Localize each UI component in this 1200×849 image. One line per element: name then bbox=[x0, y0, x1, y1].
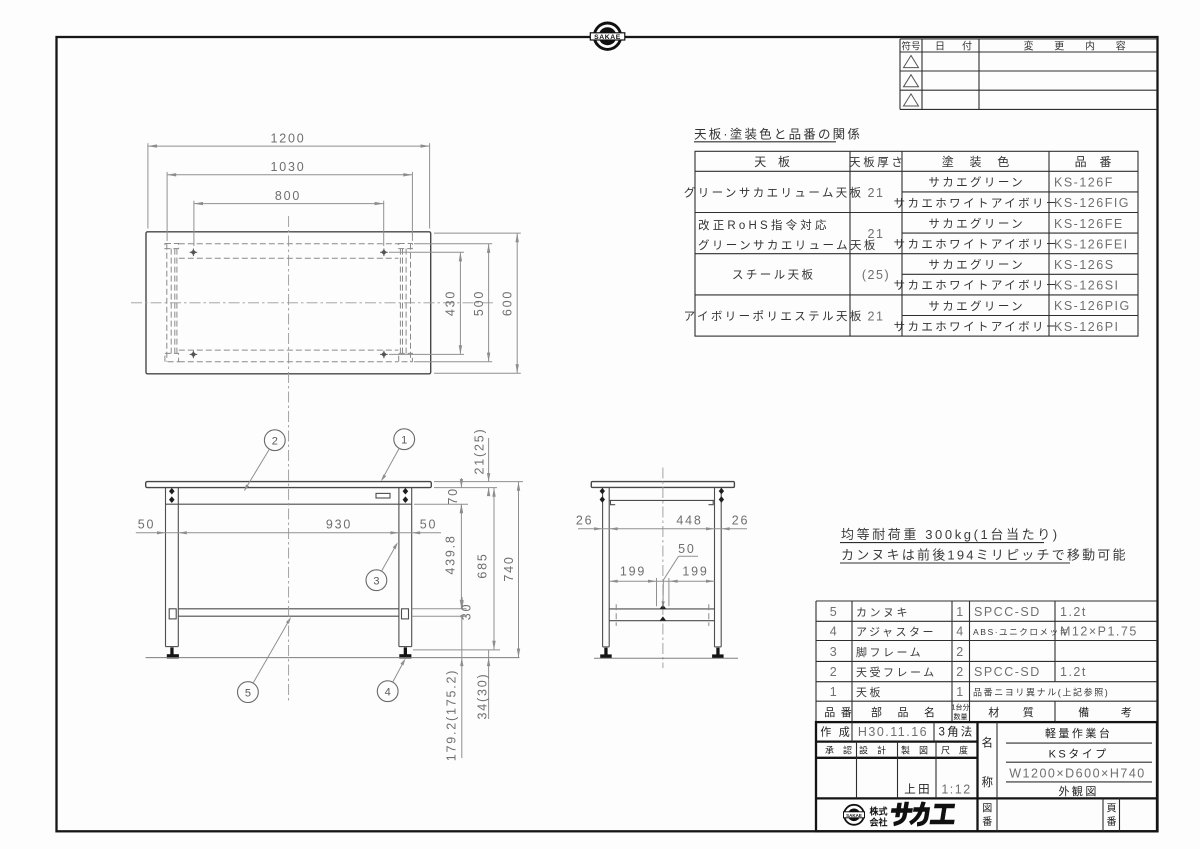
svg-text:4: 4 bbox=[385, 686, 391, 698]
svg-text:21: 21 bbox=[868, 309, 885, 323]
svg-text:改正RoHS指令対応: 改正RoHS指令対応 bbox=[698, 218, 830, 232]
svg-text:179.2(175.2): 179.2(175.2) bbox=[445, 669, 459, 762]
svg-text:600: 600 bbox=[501, 290, 515, 316]
svg-text:4: 4 bbox=[830, 625, 838, 639]
svg-text:変更内容: 変更内容 bbox=[1024, 40, 1147, 53]
svg-text:2: 2 bbox=[272, 435, 278, 447]
svg-text:1200: 1200 bbox=[270, 131, 305, 145]
svg-text:199: 199 bbox=[682, 564, 708, 578]
svg-text:199: 199 bbox=[620, 564, 646, 578]
svg-text:SPCC-SD: SPCC-SD bbox=[974, 665, 1041, 679]
svg-text:70: 70 bbox=[446, 487, 460, 505]
svg-text:KS-126PIG: KS-126PIG bbox=[1054, 299, 1131, 313]
svg-text:439.8: 439.8 bbox=[444, 534, 458, 574]
svg-text:番: 番 bbox=[1107, 816, 1117, 828]
svg-text:740: 740 bbox=[502, 555, 516, 581]
svg-text:数量: 数量 bbox=[954, 712, 968, 721]
svg-text:21: 21 bbox=[868, 227, 885, 241]
svg-text:品番: 品番 bbox=[1075, 155, 1125, 169]
svg-text:SAKAE: SAKAE bbox=[846, 813, 862, 818]
svg-text:685: 685 bbox=[475, 552, 489, 578]
svg-text:5: 5 bbox=[245, 687, 251, 699]
svg-text:21(25): 21(25) bbox=[473, 428, 487, 475]
svg-text:作成: 作成 bbox=[820, 726, 857, 739]
svg-text:番: 番 bbox=[982, 816, 992, 828]
svg-text:2: 2 bbox=[830, 665, 838, 679]
svg-text:KS-126F: KS-126F bbox=[1054, 176, 1114, 190]
svg-text:株式: 株式 bbox=[870, 806, 888, 817]
svg-text:サカエホワイトアイボリー: サカエホワイトアイボリー bbox=[894, 197, 1060, 210]
svg-text:1:12: 1:12 bbox=[941, 783, 971, 797]
svg-text:アイボリーポリエステル天板: アイボリーポリエステル天板 bbox=[684, 309, 864, 323]
svg-text:尺度: 尺度 bbox=[941, 745, 977, 756]
svg-text:部品名: 部品名 bbox=[871, 705, 951, 719]
svg-text:26: 26 bbox=[576, 513, 594, 527]
svg-text:KS-126FE: KS-126FE bbox=[1054, 217, 1124, 231]
svg-text:SAKAE: SAKAE bbox=[594, 34, 621, 41]
svg-text:グリーンサカエリューム天板: グリーンサカエリューム天板 bbox=[684, 186, 864, 200]
svg-text:天板: 天板 bbox=[856, 685, 883, 699]
svg-text:名: 名 bbox=[981, 736, 993, 750]
svg-text:1台分: 1台分 bbox=[952, 703, 970, 712]
svg-text:430: 430 bbox=[444, 290, 458, 316]
svg-text:4: 4 bbox=[956, 625, 964, 639]
svg-text:930: 930 bbox=[326, 517, 352, 531]
svg-text:2: 2 bbox=[956, 665, 964, 679]
svg-text:サカエグリーン: サカエグリーン bbox=[928, 216, 1025, 230]
svg-text:3角法: 3角法 bbox=[939, 725, 975, 739]
svg-text:天板: 天板 bbox=[754, 155, 802, 169]
svg-text:会社: 会社 bbox=[870, 817, 888, 828]
svg-text:1030: 1030 bbox=[270, 160, 305, 174]
svg-text:アジャスター: アジャスター bbox=[856, 626, 936, 639]
svg-text:軽量作業台: 軽量作業台 bbox=[1045, 726, 1113, 740]
svg-text:ABS·ユニクロメッキ: ABS·ユニクロメッキ bbox=[973, 627, 1070, 637]
svg-text:カンヌキは前後194ミリピッチで移動可能: カンヌキは前後194ミリピッチで移動可能 bbox=[841, 548, 1128, 563]
svg-text:製図: 製図 bbox=[901, 745, 937, 756]
svg-text:カンヌキ: カンヌキ bbox=[856, 606, 910, 619]
svg-text:天受フレーム: 天受フレーム bbox=[856, 666, 937, 679]
svg-text:2: 2 bbox=[956, 645, 964, 659]
svg-text:3: 3 bbox=[830, 645, 838, 659]
svg-text:称: 称 bbox=[981, 775, 993, 789]
svg-text:H30.11.16: H30.11.16 bbox=[858, 725, 928, 739]
svg-text:1.2t: 1.2t bbox=[1060, 665, 1087, 679]
svg-text:50: 50 bbox=[678, 542, 696, 556]
svg-text:サカエホワイトアイボリー: サカエホワイトアイボリー bbox=[894, 320, 1060, 333]
svg-text:サカエグリーン: サカエグリーン bbox=[928, 258, 1025, 272]
svg-text:5: 5 bbox=[830, 605, 838, 619]
svg-text:(25): (25) bbox=[862, 268, 890, 282]
svg-text:符号: 符号 bbox=[901, 40, 920, 52]
svg-text:50: 50 bbox=[138, 517, 156, 531]
svg-text:天板·塗装色と品番の関係: 天板·塗装色と品番の関係 bbox=[694, 127, 862, 142]
svg-text:頁: 頁 bbox=[1107, 803, 1117, 815]
svg-text:800: 800 bbox=[275, 189, 301, 203]
svg-text:KS-126FEI: KS-126FEI bbox=[1054, 237, 1129, 251]
svg-text:日付: 日付 bbox=[935, 40, 989, 53]
svg-text:500: 500 bbox=[472, 290, 486, 316]
svg-text:図: 図 bbox=[982, 803, 992, 815]
svg-text:26: 26 bbox=[732, 513, 750, 527]
svg-text:KS-126PI: KS-126PI bbox=[1054, 320, 1120, 334]
svg-text:品番: 品番 bbox=[824, 706, 857, 719]
svg-text:448: 448 bbox=[676, 513, 702, 527]
svg-text:天板厚さ: 天板厚さ bbox=[849, 155, 905, 169]
svg-text:50: 50 bbox=[420, 517, 438, 531]
svg-text:1: 1 bbox=[956, 685, 964, 699]
svg-text:KS-126SI: KS-126SI bbox=[1054, 279, 1120, 293]
svg-text:KS-126FIG: KS-126FIG bbox=[1054, 196, 1130, 210]
svg-text:1: 1 bbox=[956, 605, 964, 619]
svg-text:上田: 上田 bbox=[904, 783, 932, 796]
svg-text:サカエグリーン: サカエグリーン bbox=[928, 299, 1025, 313]
svg-text:均等耐荷重 300kg(1台当たり): 均等耐荷重 300kg(1台当たり) bbox=[841, 527, 1060, 542]
svg-text:34(30): 34(30) bbox=[476, 673, 490, 720]
svg-text:外観図: 外観図 bbox=[1058, 784, 1099, 798]
svg-text:グリーンサカエリューム天板: グリーンサカエリューム天板 bbox=[698, 238, 878, 252]
svg-text:脚フレーム: 脚フレーム bbox=[856, 645, 923, 659]
svg-text:KS-126S: KS-126S bbox=[1054, 258, 1115, 272]
svg-text:21: 21 bbox=[868, 186, 885, 200]
svg-text:サカエホワイトアイボリー: サカエホワイトアイボリー bbox=[894, 279, 1060, 292]
svg-text:3: 3 bbox=[373, 575, 379, 587]
svg-text:1.2t: 1.2t bbox=[1060, 605, 1087, 619]
svg-text:スチール天板: スチール天板 bbox=[732, 268, 815, 282]
svg-text:1: 1 bbox=[401, 434, 407, 446]
svg-text:SPCC-SD: SPCC-SD bbox=[974, 605, 1041, 619]
svg-text:1: 1 bbox=[830, 685, 838, 699]
svg-text:塗装色: 塗装色 bbox=[942, 154, 1025, 169]
svg-text:設計: 設計 bbox=[859, 745, 895, 756]
svg-text:サカエホワイトアイボリー: サカエホワイトアイボリー bbox=[894, 238, 1060, 251]
svg-text:承認: 承認 bbox=[825, 745, 861, 756]
svg-text:品番ニヨリ異ナル(上記参照): 品番ニヨリ異ナル(上記参照) bbox=[973, 686, 1109, 697]
svg-text:備考: 備考 bbox=[1078, 706, 1163, 719]
svg-text:KSタイプ: KSタイプ bbox=[1049, 748, 1109, 761]
svg-text:材質: 材質 bbox=[988, 705, 1057, 719]
svg-text:M12×P1.75: M12×P1.75 bbox=[1060, 625, 1138, 639]
svg-text:サカエグリーン: サカエグリーン bbox=[928, 175, 1025, 189]
svg-text:W1200×D600×H740: W1200×D600×H740 bbox=[1009, 767, 1145, 781]
